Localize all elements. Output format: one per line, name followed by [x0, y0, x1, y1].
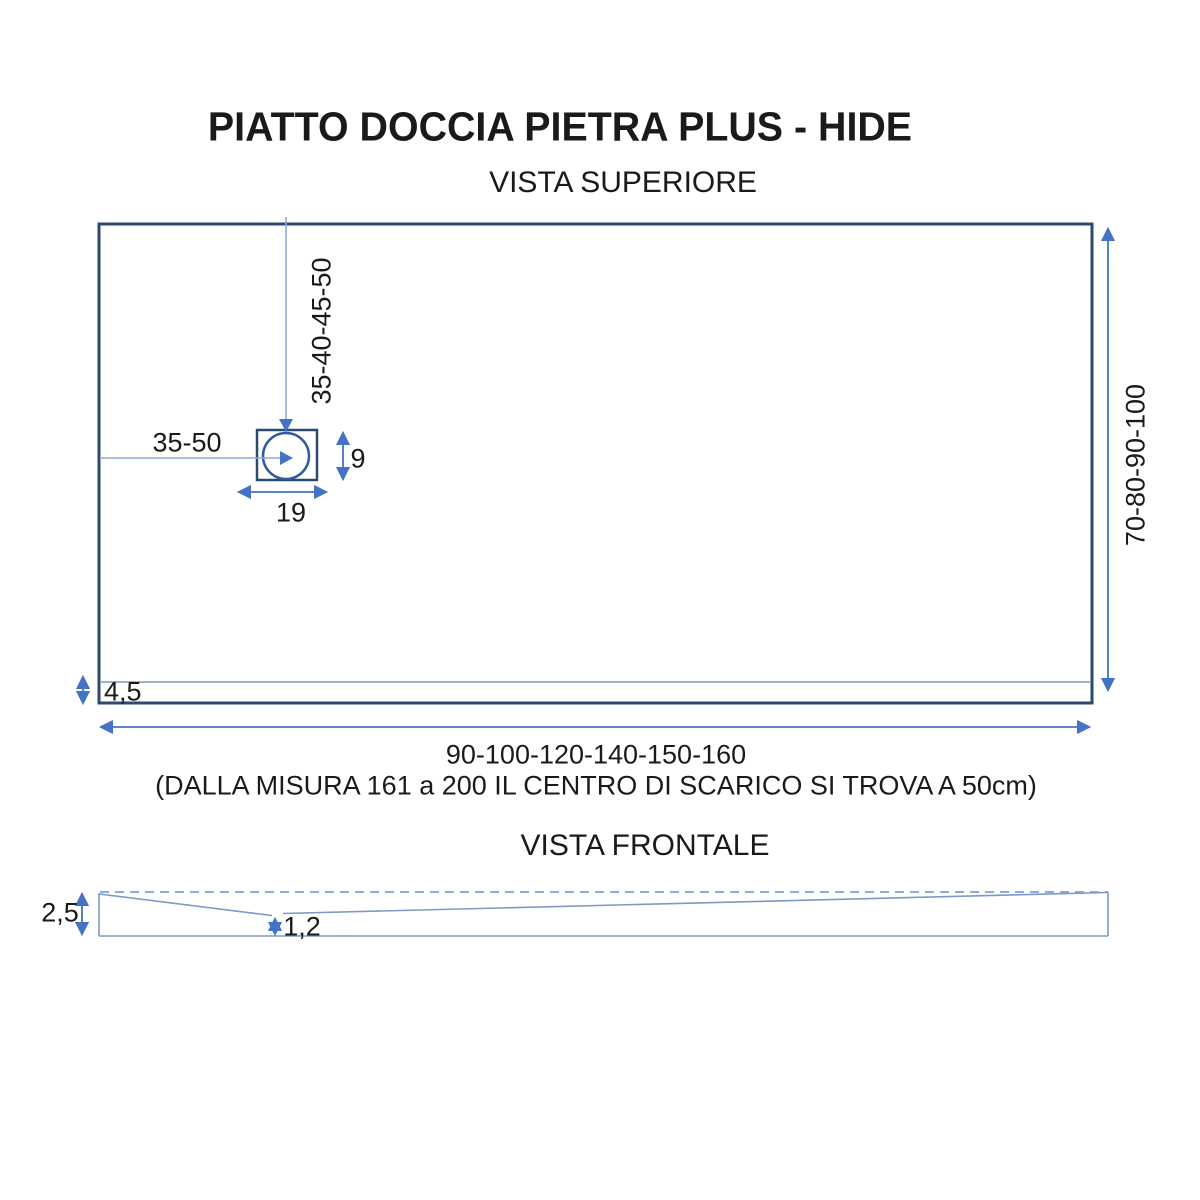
top-view-outline: [99, 224, 1092, 703]
front-view-left-slope: [99, 894, 272, 916]
dim-tray-depth: 70-80-90-100: [1123, 384, 1150, 546]
front-view-heading: VISTA FRONTALE: [521, 831, 770, 861]
dim-edge-band: 4,5: [104, 679, 142, 706]
page-title: PIATTO DOCCIA PIETRA PLUS - HIDE: [208, 107, 912, 148]
top-view-heading: VISTA SUPERIORE: [489, 168, 757, 198]
dim-drain-horizontal-offset: 35-50: [152, 430, 221, 457]
dim-front-drain-height: 1,2: [283, 914, 321, 941]
leader-arrowhead-right: [280, 451, 293, 465]
size-note: (DALLA MISURA 161 a 200 IL CENTRO DI SCA…: [155, 773, 1037, 800]
dim-drain-height: 9: [350, 446, 365, 473]
dim-drain-vertical-offset: 35-40-45-50: [309, 257, 336, 404]
dim-tray-widths: 90-100-120-140-150-160: [446, 742, 746, 769]
dim-drain-width: 19: [276, 500, 306, 527]
dim-front-edge-height: 2,5: [41, 900, 79, 927]
front-view-right-slope: [283, 893, 1107, 914]
